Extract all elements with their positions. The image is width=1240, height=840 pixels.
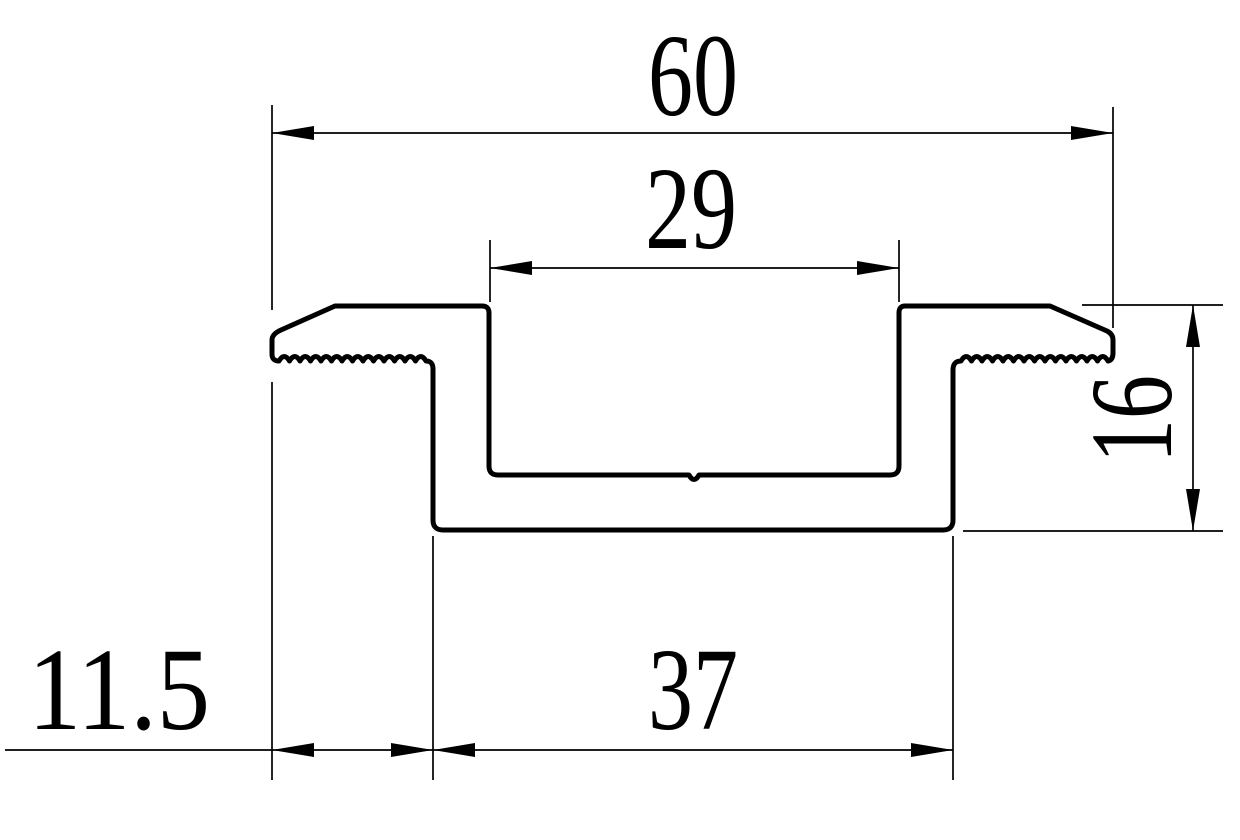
profile-outline xyxy=(272,306,1113,530)
dimension-bottom-group: 11.5 37 xyxy=(5,382,953,780)
arrowhead-up-icon xyxy=(1186,305,1200,347)
arrowhead-left-icon xyxy=(272,126,314,140)
dimension-channel-width: 29 xyxy=(490,143,899,302)
dimension-label-profile-height: 16 xyxy=(1066,375,1197,463)
technical-drawing-canvas: 60 29 16 xyxy=(0,0,1240,840)
arrowhead-down-icon xyxy=(1186,489,1200,531)
arrowhead-right-icon xyxy=(911,743,953,757)
dimension-label-left-flange-width: 11.5 xyxy=(28,624,210,755)
dimension-label-overall-width: 60 xyxy=(648,10,738,141)
dimension-label-base-width: 37 xyxy=(648,624,738,755)
arrowhead-left-icon xyxy=(433,743,475,757)
arrowhead-left-icon xyxy=(272,743,314,757)
arrowhead-right-icon xyxy=(857,261,899,275)
profile-drawing-svg: 60 29 16 xyxy=(0,0,1240,840)
arrowhead-right-icon xyxy=(391,743,433,757)
arrowhead-left-icon xyxy=(490,261,532,275)
arrowhead-right-icon xyxy=(1071,126,1113,140)
dimension-label-channel-width: 29 xyxy=(645,143,737,274)
dimension-profile-height: 16 xyxy=(963,305,1223,531)
